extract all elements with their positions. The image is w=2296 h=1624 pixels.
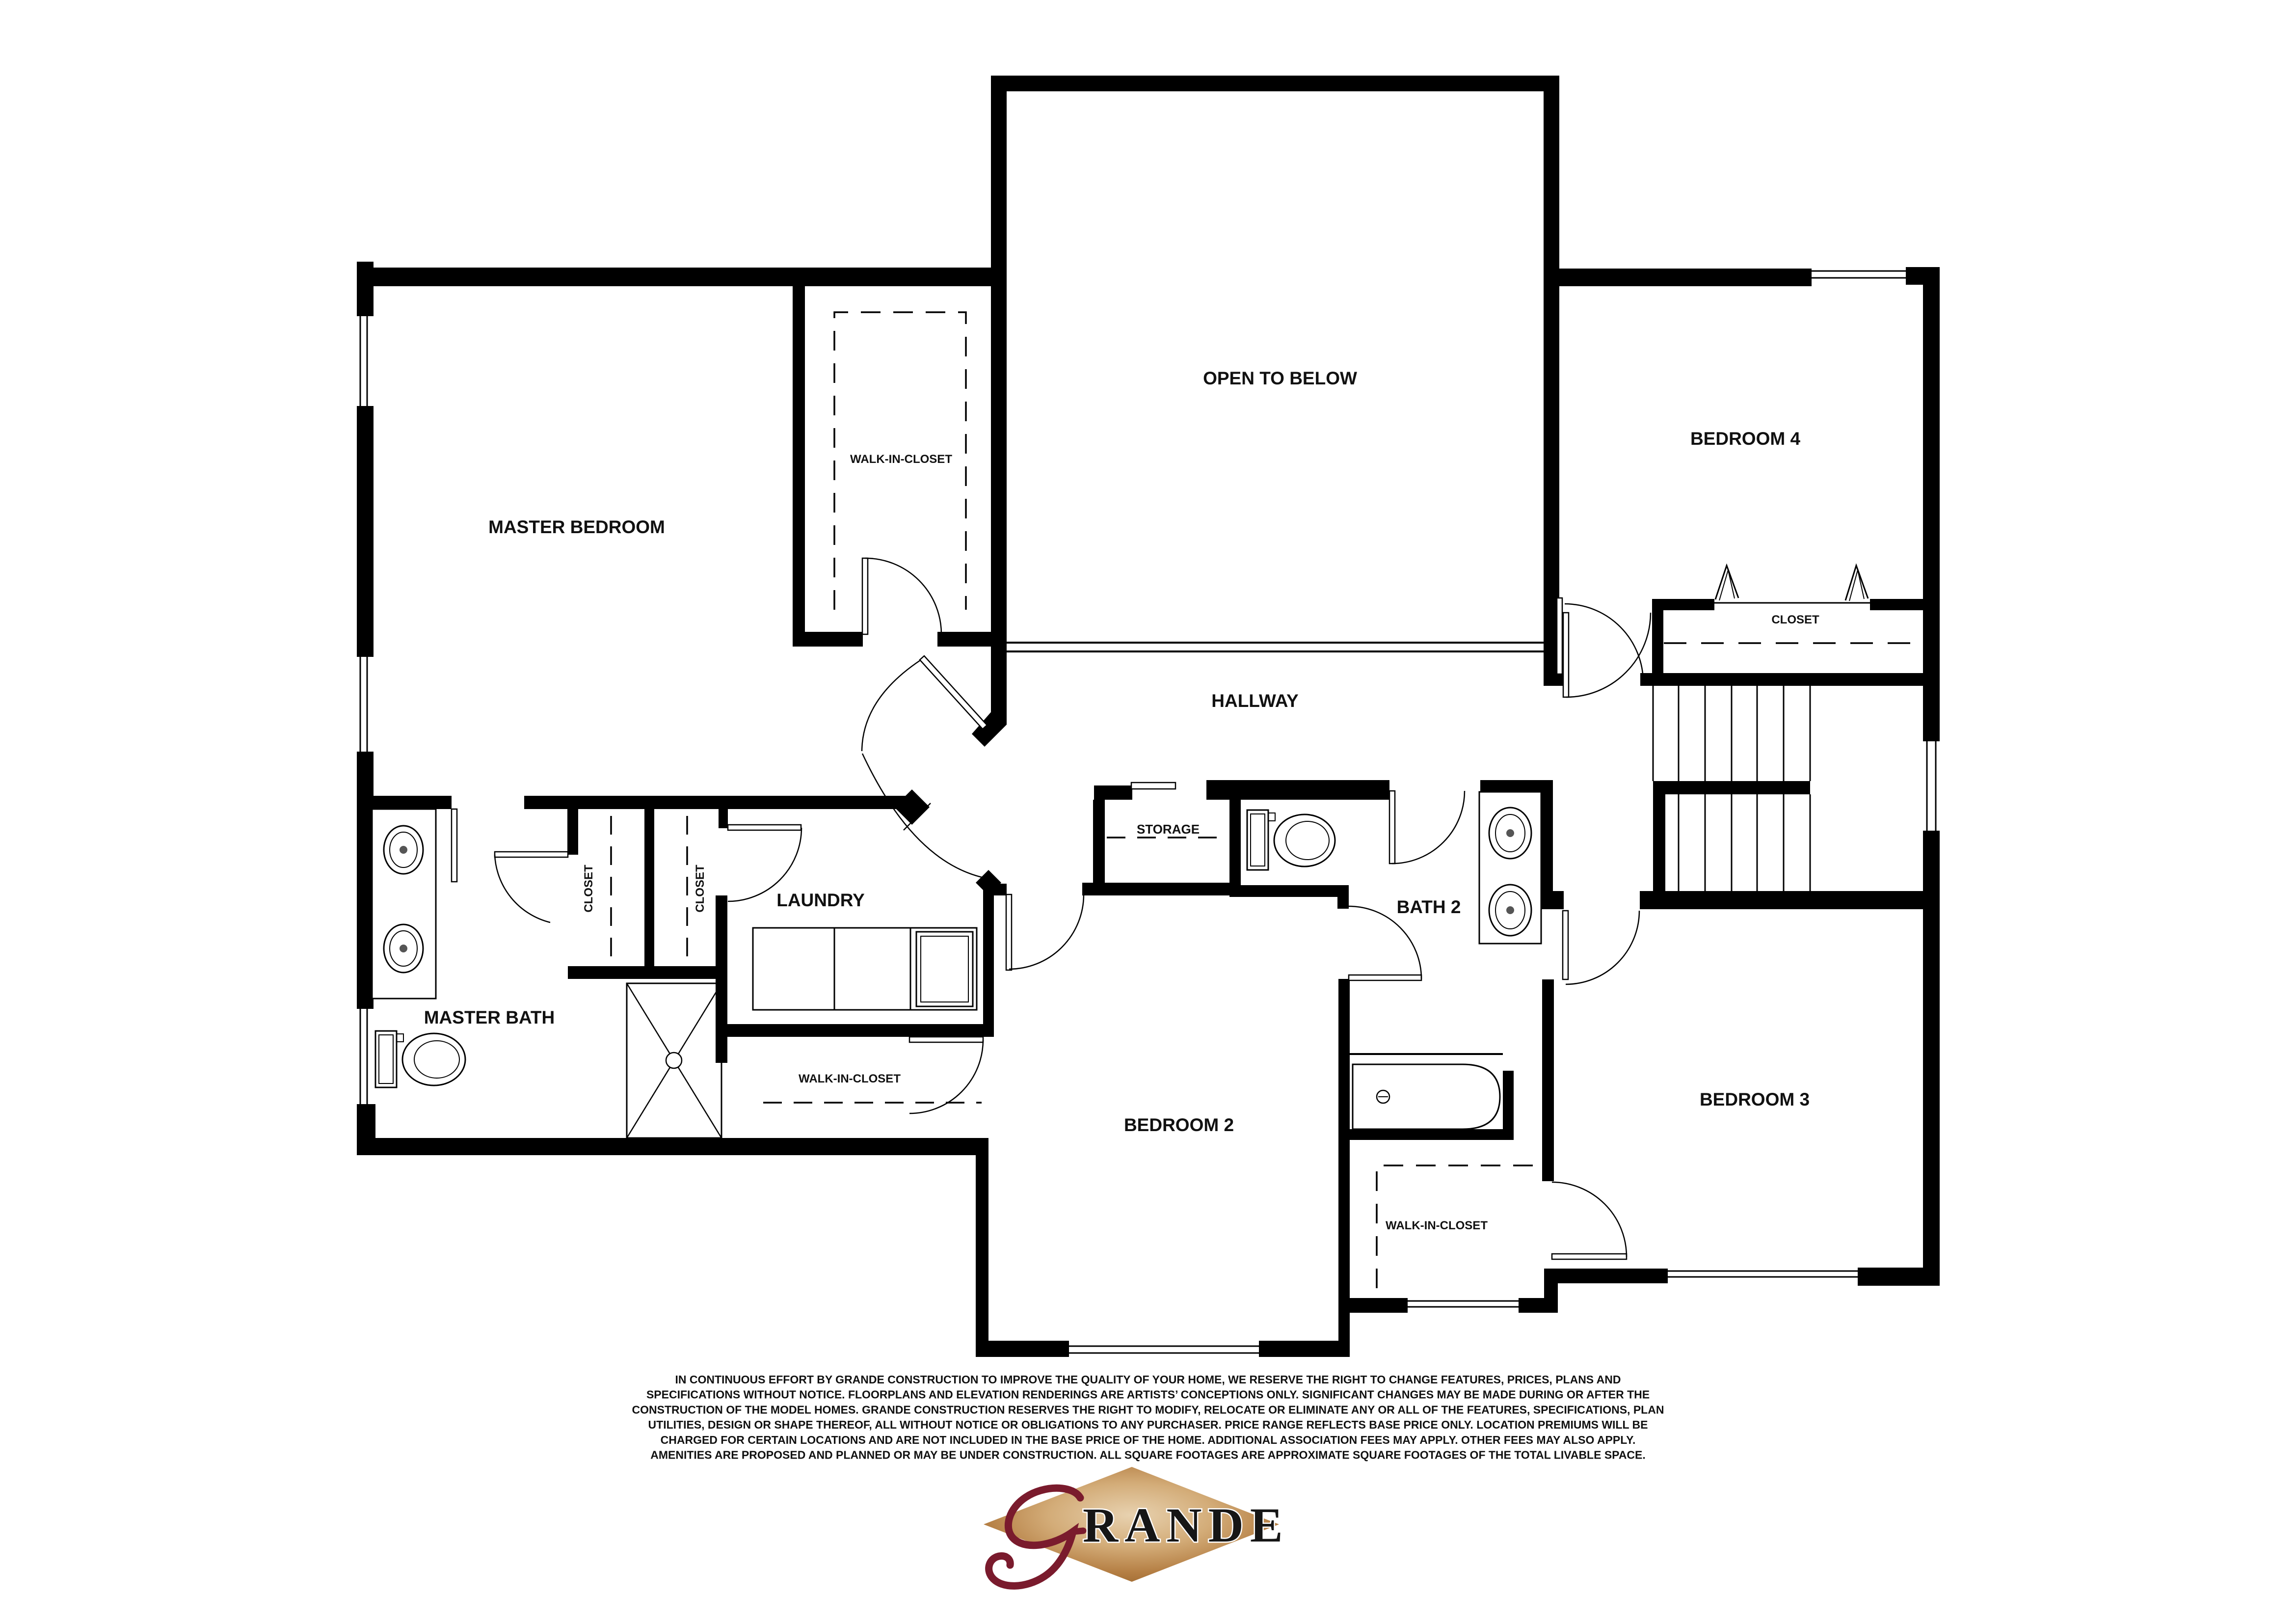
svg-text:BEDROOM 3: BEDROOM 3 bbox=[1700, 1089, 1810, 1110]
svg-text:CLOSET: CLOSET bbox=[694, 865, 707, 913]
svg-text:CONSTRUCTION OF THE MODEL HOME: CONSTRUCTION OF THE MODEL HOMES. GRANDE … bbox=[632, 1403, 1664, 1416]
svg-text:HALLWAY: HALLWAY bbox=[1211, 691, 1299, 711]
svg-text:CLOSET: CLOSET bbox=[1771, 613, 1819, 626]
svg-text:OPEN TO BELOW: OPEN TO BELOW bbox=[1203, 368, 1357, 388]
svg-text:UTILITIES, DESIGN OR SHAPE THE: UTILITIES, DESIGN OR SHAPE THEREOF, ALL … bbox=[648, 1418, 1648, 1431]
svg-text:BEDROOM 4: BEDROOM 4 bbox=[1690, 429, 1801, 449]
svg-text:AMENITIES ARE PROPOSED AND PLA: AMENITIES ARE PROPOSED AND PLANNED OR MA… bbox=[650, 1449, 1646, 1462]
svg-text:CHARGED FOR CERTAIN LOCATIONS: CHARGED FOR CERTAIN LOCATIONS AND ARE NO… bbox=[661, 1434, 1636, 1446]
svg-text:BEDROOM 2: BEDROOM 2 bbox=[1124, 1115, 1234, 1135]
svg-text:WALK-IN-CLOSET: WALK-IN-CLOSET bbox=[850, 453, 952, 466]
svg-text:MASTER BATH: MASTER BATH bbox=[424, 1007, 555, 1028]
svg-text:STORAGE: STORAGE bbox=[1137, 822, 1200, 837]
svg-text:RANDE: RANDE bbox=[1083, 1498, 1289, 1552]
svg-text:SPECIFICATIONS WITHOUT NOTICE.: SPECIFICATIONS WITHOUT NOTICE. FLOORPLAN… bbox=[646, 1388, 1650, 1401]
svg-text:MASTER BEDROOM: MASTER BEDROOM bbox=[488, 517, 665, 537]
svg-text:WALK-IN-CLOSET: WALK-IN-CLOSET bbox=[799, 1072, 901, 1085]
svg-text:LAUNDRY: LAUNDRY bbox=[776, 890, 865, 910]
svg-text:CLOSET: CLOSET bbox=[582, 865, 595, 913]
svg-text:IN CONTINUOUS EFFORT BY GRANDE: IN CONTINUOUS EFFORT BY GRANDE CONSTRUCT… bbox=[675, 1373, 1621, 1386]
svg-text:BATH 2: BATH 2 bbox=[1397, 897, 1461, 917]
svg-text:WALK-IN-CLOSET: WALK-IN-CLOSET bbox=[1386, 1219, 1488, 1232]
